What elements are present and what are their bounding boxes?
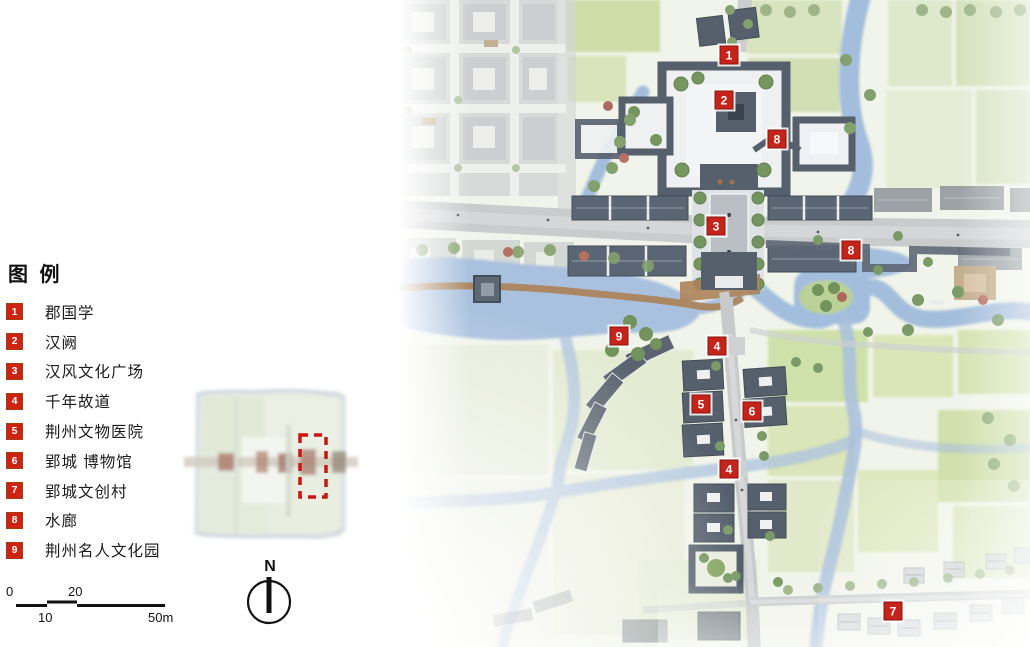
legend-item-number: 4 (6, 393, 23, 410)
overview-minimap (182, 381, 360, 561)
legend-item-number: 8 (6, 512, 23, 529)
legend-item-label: 荆州文物医院 (45, 420, 144, 442)
legend-title: 图 例 (8, 258, 63, 287)
legend-item-label: 汉风文化广场 (45, 360, 144, 382)
legend-item: 5 荆州文物医院 (6, 416, 196, 446)
scale-label-end: 50m (148, 610, 173, 625)
map-marker-4: 4 (720, 460, 739, 479)
map-marker-8: 8 (768, 130, 787, 149)
scale-bar: 0 20 10 50m (0, 578, 210, 630)
legend-item-label: 郢城文创村 (45, 480, 128, 502)
legend-item-label: 水廊 (45, 509, 78, 531)
map-marker-5: 5 (692, 395, 711, 414)
legend-item: 9 荆州名人文化园 (6, 535, 196, 565)
map-marker-6: 6 (743, 402, 762, 421)
north-label: N (264, 558, 276, 575)
legend-item-number: 1 (6, 303, 23, 320)
legend-list: 1 郡国学 2 汉阙 3 汉风文化广场 4 千年故道 5 荆州文物医院 6 郢城… (6, 297, 196, 565)
map-marker-2: 2 (715, 91, 734, 110)
legend-item-label: 荆州名人文化园 (45, 539, 161, 561)
legend-item: 6 郢城 博物馆 (6, 446, 196, 476)
legend-item: 4 千年故道 (6, 386, 196, 416)
legend-item-label: 千年故道 (45, 390, 111, 412)
north-indicator: N (238, 556, 302, 634)
legend-item: 8 水廊 (6, 506, 196, 536)
map-marker-9: 9 (610, 327, 629, 346)
map-marker-7: 7 (884, 602, 903, 621)
site-plan-map: 12838945647 (398, 0, 1030, 647)
map-marker-8: 8 (842, 241, 861, 260)
map-marker-layer: 12838945647 (398, 0, 1030, 647)
legend-item-number: 6 (6, 452, 23, 469)
legend-item-number: 3 (6, 363, 23, 380)
legend-item-number: 9 (6, 542, 23, 559)
legend-item: 1 郡国学 (6, 297, 196, 327)
legend-item-number: 2 (6, 333, 23, 350)
legend-item-number: 7 (6, 482, 23, 499)
map-marker-4: 4 (708, 337, 727, 356)
map-marker-3: 3 (707, 217, 726, 236)
map-marker-1: 1 (720, 46, 739, 65)
legend-item-number: 5 (6, 423, 23, 440)
legend-item-label: 汉阙 (45, 331, 78, 353)
legend-item: 2 汉阙 (6, 327, 196, 357)
scale-label-10: 10 (38, 610, 52, 625)
legend-item-label: 郢城 博物馆 (45, 450, 133, 472)
legend-item-label: 郡国学 (45, 301, 95, 323)
scale-label-start: 0 (6, 584, 13, 599)
legend-item: 7 郢城文创村 (6, 476, 196, 506)
site-plan-page: 图 例 1 郡国学 2 汉阙 3 汉风文化广场 4 千年故道 5 荆州文物医院 … (0, 0, 1030, 647)
scale-label-20: 20 (68, 584, 82, 599)
legend-item: 3 汉风文化广场 (6, 357, 196, 387)
